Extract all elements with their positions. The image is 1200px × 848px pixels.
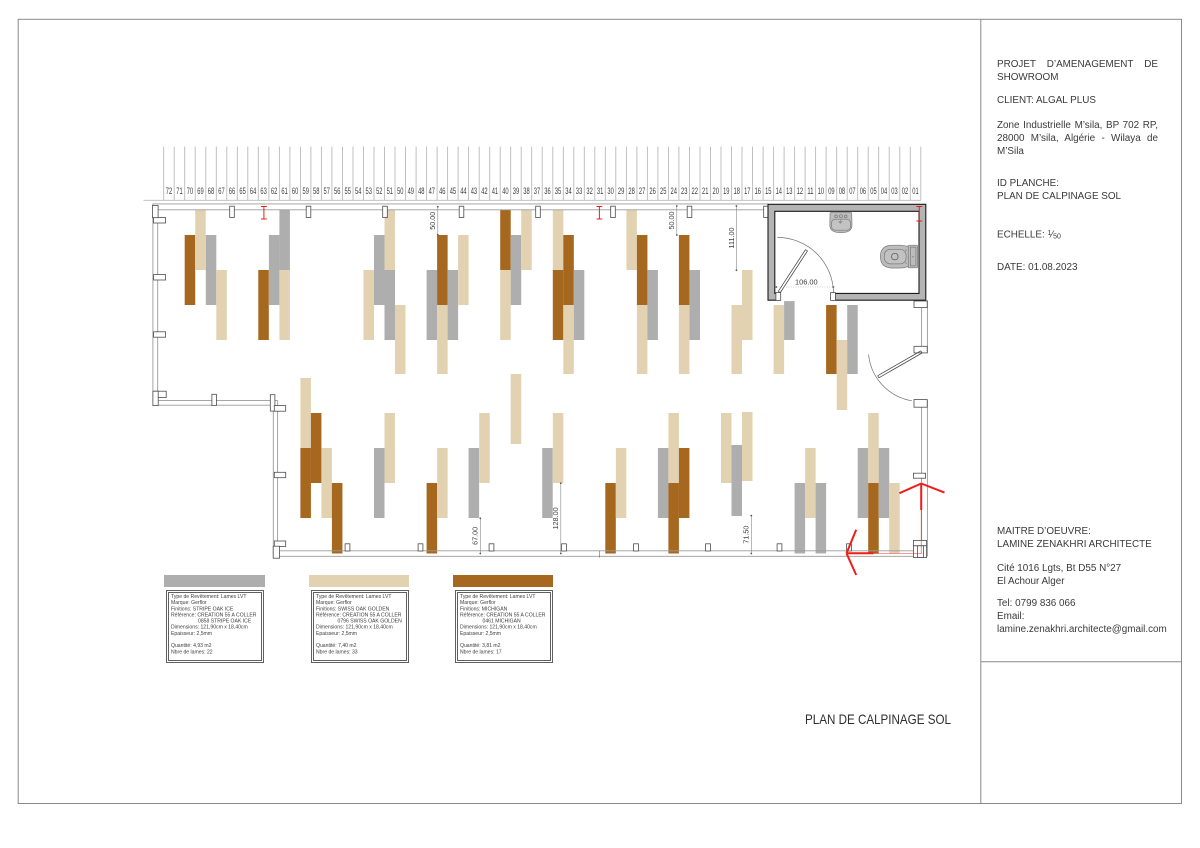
svg-text:07: 07 bbox=[849, 186, 855, 196]
svg-text:30: 30 bbox=[607, 186, 613, 196]
svg-text:61: 61 bbox=[281, 186, 287, 196]
svg-text:71: 71 bbox=[176, 186, 182, 196]
svg-text:31: 31 bbox=[597, 186, 603, 196]
svg-text:50.00: 50.00 bbox=[428, 212, 437, 230]
svg-text:16: 16 bbox=[755, 186, 761, 196]
svg-text:35: 35 bbox=[555, 186, 561, 196]
svg-text:04: 04 bbox=[881, 186, 887, 196]
svg-text:70: 70 bbox=[187, 186, 193, 196]
svg-text:39: 39 bbox=[513, 186, 519, 196]
svg-text:21: 21 bbox=[702, 186, 708, 196]
svg-text:67: 67 bbox=[218, 186, 224, 196]
svg-text:56: 56 bbox=[334, 186, 340, 196]
svg-text:49: 49 bbox=[408, 186, 414, 196]
svg-text:11: 11 bbox=[807, 186, 813, 196]
svg-text:71.50: 71.50 bbox=[742, 526, 751, 544]
svg-text:45: 45 bbox=[450, 186, 456, 196]
svg-text:52: 52 bbox=[376, 186, 382, 196]
svg-text:69: 69 bbox=[197, 186, 203, 196]
svg-text:41: 41 bbox=[492, 186, 498, 196]
svg-text:64: 64 bbox=[250, 186, 256, 196]
svg-text:32: 32 bbox=[586, 186, 592, 196]
svg-text:51: 51 bbox=[387, 186, 393, 196]
svg-text:26: 26 bbox=[649, 186, 655, 196]
svg-text:72: 72 bbox=[166, 186, 172, 196]
svg-text:03: 03 bbox=[891, 186, 897, 196]
svg-text:20: 20 bbox=[713, 186, 719, 196]
svg-text:06: 06 bbox=[860, 186, 866, 196]
svg-text:55: 55 bbox=[345, 186, 351, 196]
svg-text:59: 59 bbox=[303, 186, 309, 196]
svg-text:28: 28 bbox=[628, 186, 634, 196]
svg-text:36: 36 bbox=[544, 186, 550, 196]
svg-text:05: 05 bbox=[870, 186, 876, 196]
svg-text:111.00: 111.00 bbox=[727, 228, 736, 249]
svg-text:57: 57 bbox=[324, 186, 330, 196]
svg-text:10: 10 bbox=[818, 186, 824, 196]
svg-text:17: 17 bbox=[744, 186, 750, 196]
svg-text:42: 42 bbox=[481, 186, 487, 196]
svg-text:47: 47 bbox=[429, 186, 435, 196]
svg-text:40: 40 bbox=[502, 186, 508, 196]
svg-text:63: 63 bbox=[260, 186, 266, 196]
svg-text:37: 37 bbox=[534, 186, 540, 196]
svg-text:50: 50 bbox=[397, 186, 403, 196]
svg-text:33: 33 bbox=[576, 186, 582, 196]
svg-text:01: 01 bbox=[912, 186, 918, 196]
svg-text:15: 15 bbox=[765, 186, 771, 196]
svg-text:62: 62 bbox=[271, 186, 277, 196]
svg-text:53: 53 bbox=[366, 186, 372, 196]
svg-text:44: 44 bbox=[460, 186, 466, 196]
svg-text:24: 24 bbox=[671, 186, 677, 196]
svg-text:58: 58 bbox=[313, 186, 319, 196]
svg-text:23: 23 bbox=[681, 186, 687, 196]
svg-text:18: 18 bbox=[734, 186, 740, 196]
svg-text:46: 46 bbox=[439, 186, 445, 196]
svg-text:60: 60 bbox=[292, 186, 298, 196]
svg-text:22: 22 bbox=[692, 186, 698, 196]
svg-text:13: 13 bbox=[786, 186, 792, 196]
svg-text:27: 27 bbox=[639, 186, 645, 196]
svg-text:68: 68 bbox=[208, 186, 214, 196]
svg-text:43: 43 bbox=[471, 186, 477, 196]
svg-text:25: 25 bbox=[660, 186, 666, 196]
svg-text:08: 08 bbox=[839, 186, 845, 196]
svg-text:66: 66 bbox=[229, 186, 235, 196]
svg-text:14: 14 bbox=[776, 186, 782, 196]
svg-text:128.00: 128.00 bbox=[551, 507, 560, 529]
svg-text:09: 09 bbox=[828, 186, 834, 196]
svg-text:02: 02 bbox=[902, 186, 908, 196]
svg-text:67.00: 67.00 bbox=[471, 527, 480, 545]
svg-text:48: 48 bbox=[418, 186, 424, 196]
svg-text:50.00: 50.00 bbox=[667, 212, 676, 230]
svg-text:19: 19 bbox=[723, 186, 729, 196]
svg-text:65: 65 bbox=[239, 186, 245, 196]
svg-text:12: 12 bbox=[797, 186, 803, 196]
svg-text:106.00: 106.00 bbox=[795, 277, 818, 286]
svg-text:38: 38 bbox=[523, 186, 529, 196]
svg-text:34: 34 bbox=[565, 186, 571, 196]
svg-text:54: 54 bbox=[355, 186, 361, 196]
svg-text:29: 29 bbox=[618, 186, 624, 196]
